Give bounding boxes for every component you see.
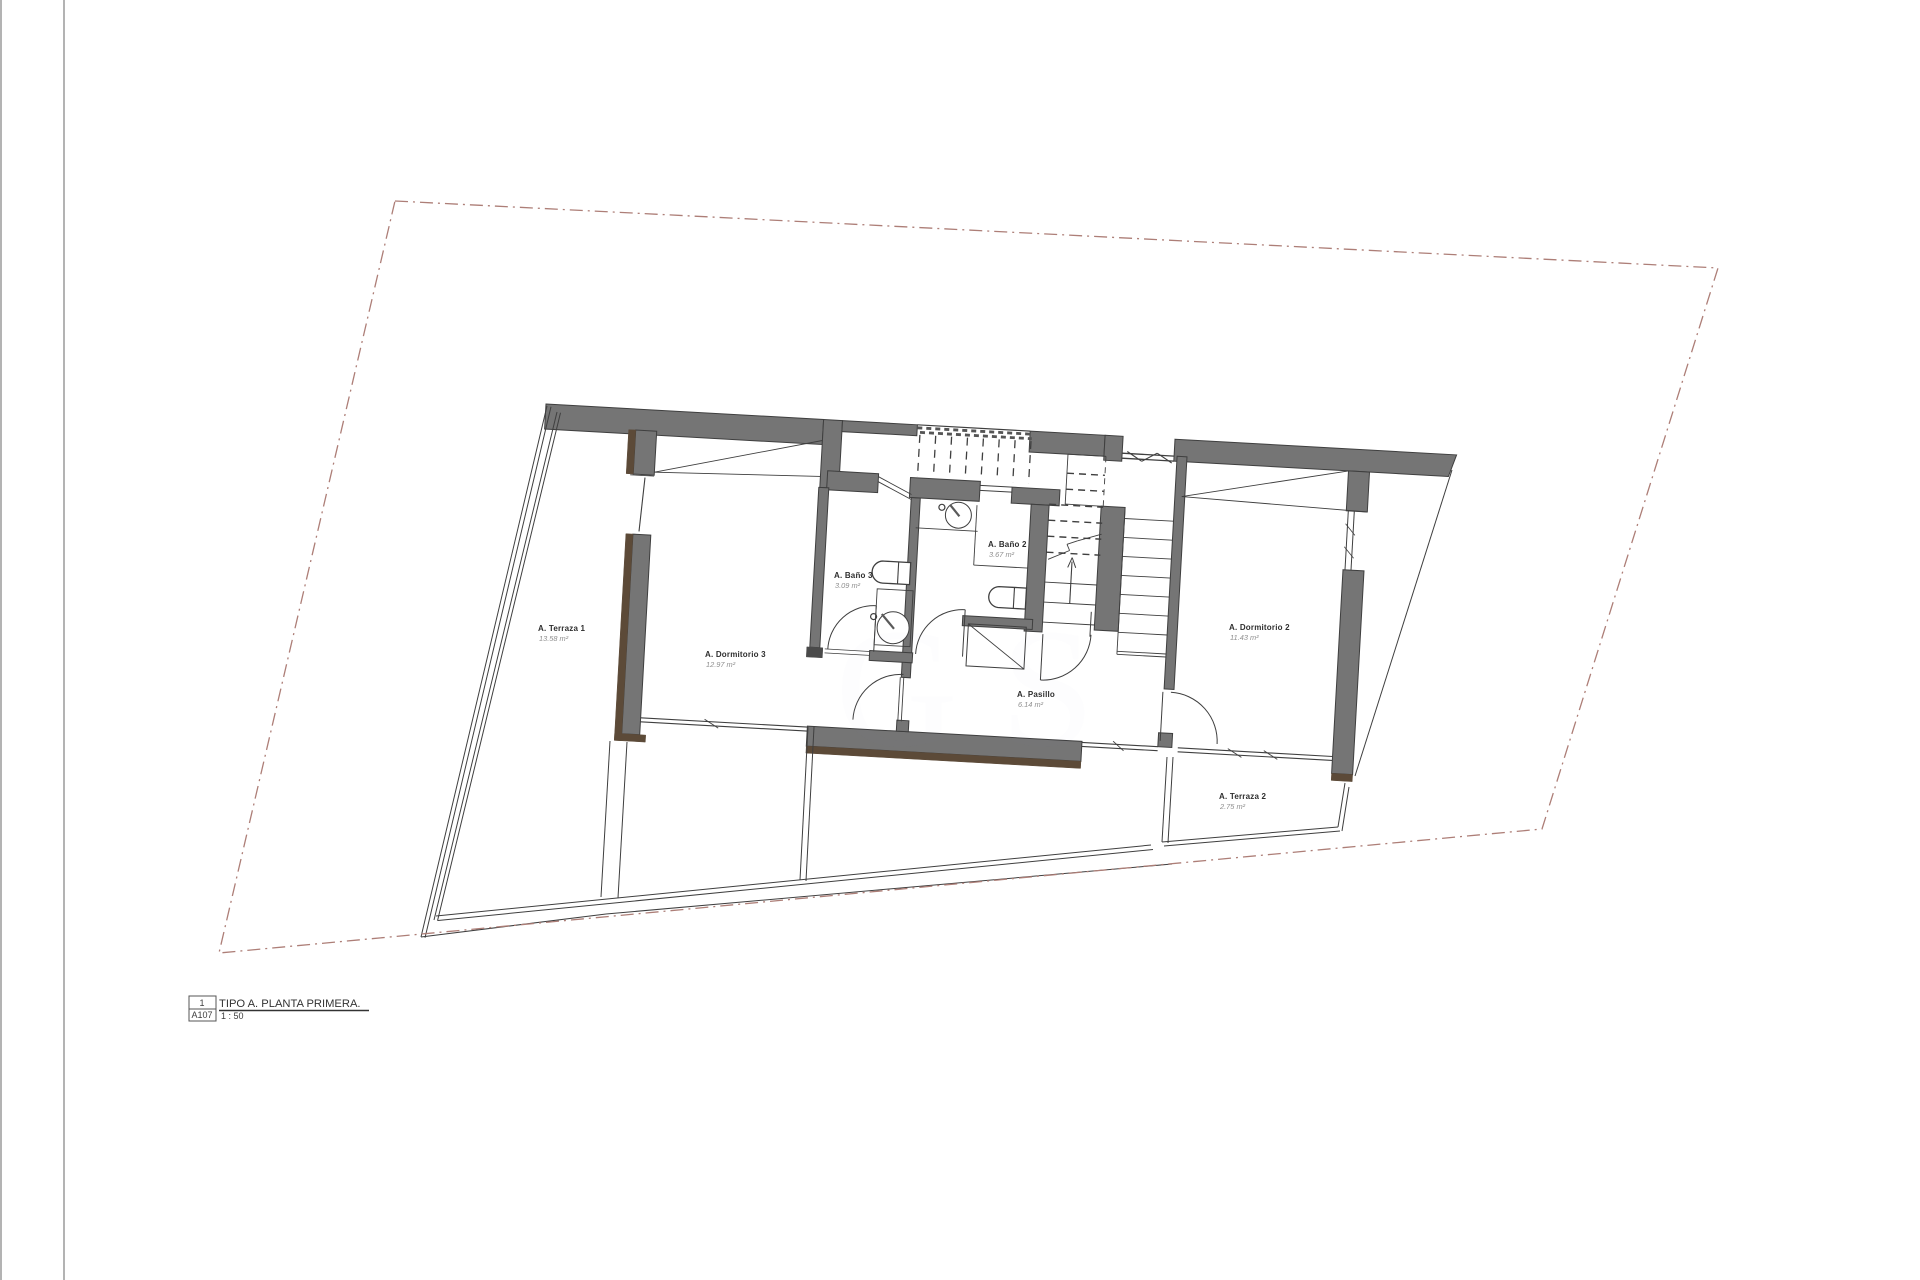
svg-text:3.09 m²: 3.09 m² <box>835 581 861 590</box>
svg-text:1 : 50: 1 : 50 <box>221 1011 244 1021</box>
svg-text:12.97 m²: 12.97 m² <box>706 660 736 669</box>
svg-text:A. Baño 2: A. Baño 2 <box>988 540 1027 549</box>
svg-text:TIPO A. PLANTA PRIMERA.: TIPO A. PLANTA PRIMERA. <box>219 998 361 1010</box>
svg-text:3.67 m²: 3.67 m² <box>989 550 1015 559</box>
svg-text:6.14 m²: 6.14 m² <box>1018 700 1044 709</box>
svg-text:A. Baño 3: A. Baño 3 <box>834 571 873 580</box>
svg-text:G S: G S <box>835 594 1095 782</box>
svg-text:A107: A107 <box>191 1010 212 1020</box>
svg-text:A. Terraza 1: A. Terraza 1 <box>538 624 586 633</box>
svg-text:A. Dormitorio 2: A. Dormitorio 2 <box>1229 623 1290 632</box>
svg-text:A. Pasillo: A. Pasillo <box>1017 690 1055 699</box>
svg-text:1: 1 <box>199 998 204 1008</box>
svg-text:13.58 m²: 13.58 m² <box>539 634 569 643</box>
svg-text:2.75 m²: 2.75 m² <box>1219 802 1246 811</box>
svg-text:11.43 m²: 11.43 m² <box>1230 633 1259 642</box>
svg-text:A. Terraza 2: A. Terraza 2 <box>1219 792 1267 801</box>
svg-text:A. Dormitorio 3: A. Dormitorio 3 <box>705 650 766 659</box>
